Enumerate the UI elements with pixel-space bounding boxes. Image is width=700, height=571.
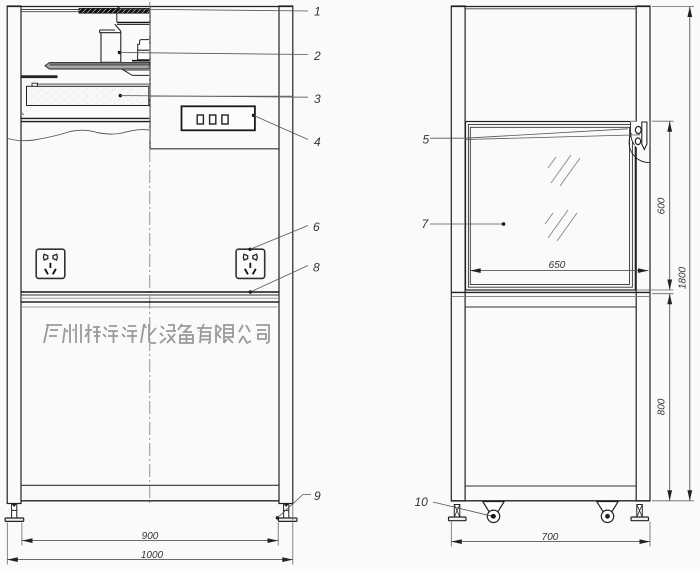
svg-text:6: 6 [313,220,320,234]
svg-text:900: 900 [142,531,159,542]
svg-text:5: 5 [423,133,430,147]
svg-text:10: 10 [415,495,429,509]
svg-text:2: 2 [313,49,321,63]
svg-text:600: 600 [657,197,668,214]
svg-text:4: 4 [314,135,321,149]
svg-text:800: 800 [657,398,668,415]
svg-text:3: 3 [314,92,321,106]
svg-text:650: 650 [549,260,566,271]
svg-text:1: 1 [314,5,321,19]
svg-text:8: 8 [313,261,320,275]
svg-text:1000: 1000 [141,550,164,561]
svg-text:9: 9 [314,489,321,503]
svg-text:700: 700 [542,532,559,543]
svg-text:1800: 1800 [678,266,689,289]
